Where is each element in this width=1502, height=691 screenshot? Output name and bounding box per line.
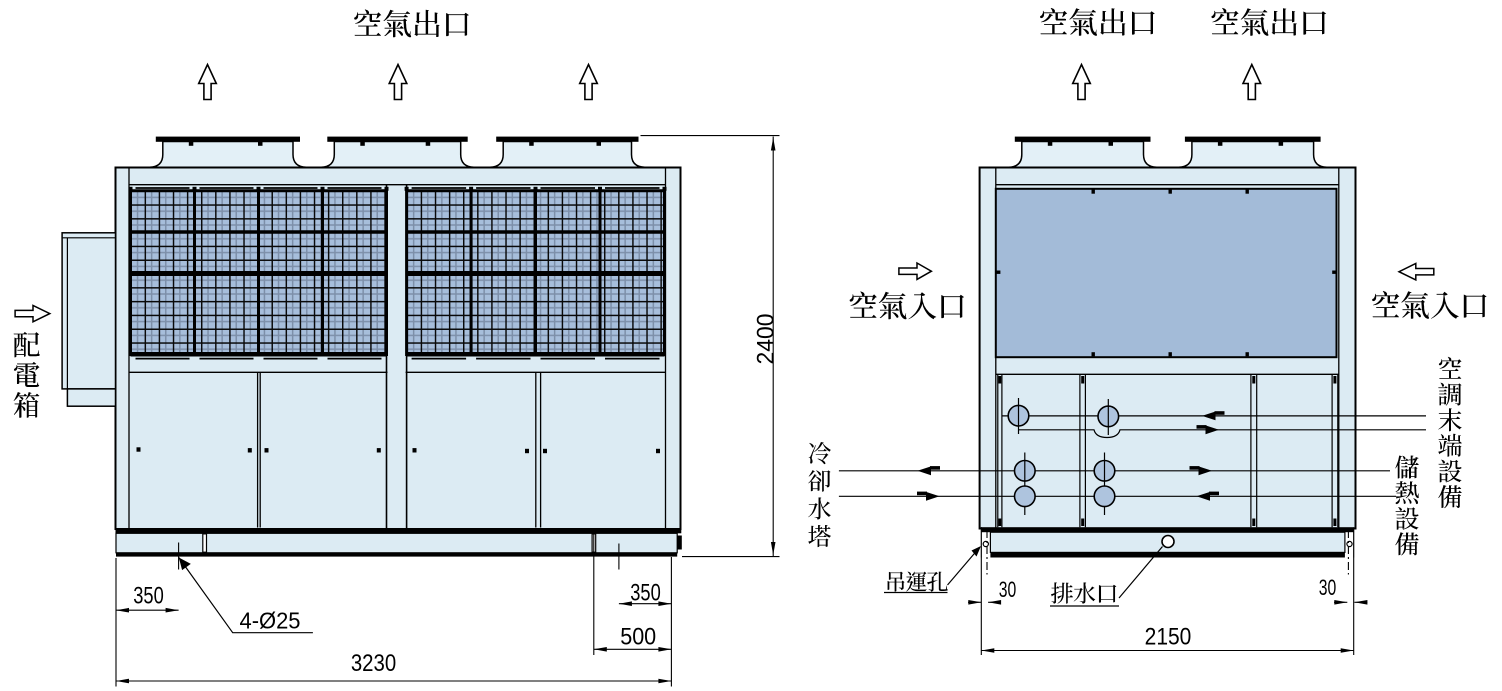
svg-text:500: 500: [620, 624, 656, 651]
svg-text:350: 350: [133, 583, 164, 610]
svg-text:30: 30: [999, 577, 1017, 602]
svg-text:30: 30: [1319, 575, 1337, 600]
svg-text:350: 350: [630, 580, 661, 607]
svg-text:2400: 2400: [753, 314, 780, 365]
svg-text:2150: 2150: [1145, 624, 1192, 651]
svg-text:3230: 3230: [351, 650, 396, 677]
svg-text:4-Ø25: 4-Ø25: [240, 608, 301, 634]
